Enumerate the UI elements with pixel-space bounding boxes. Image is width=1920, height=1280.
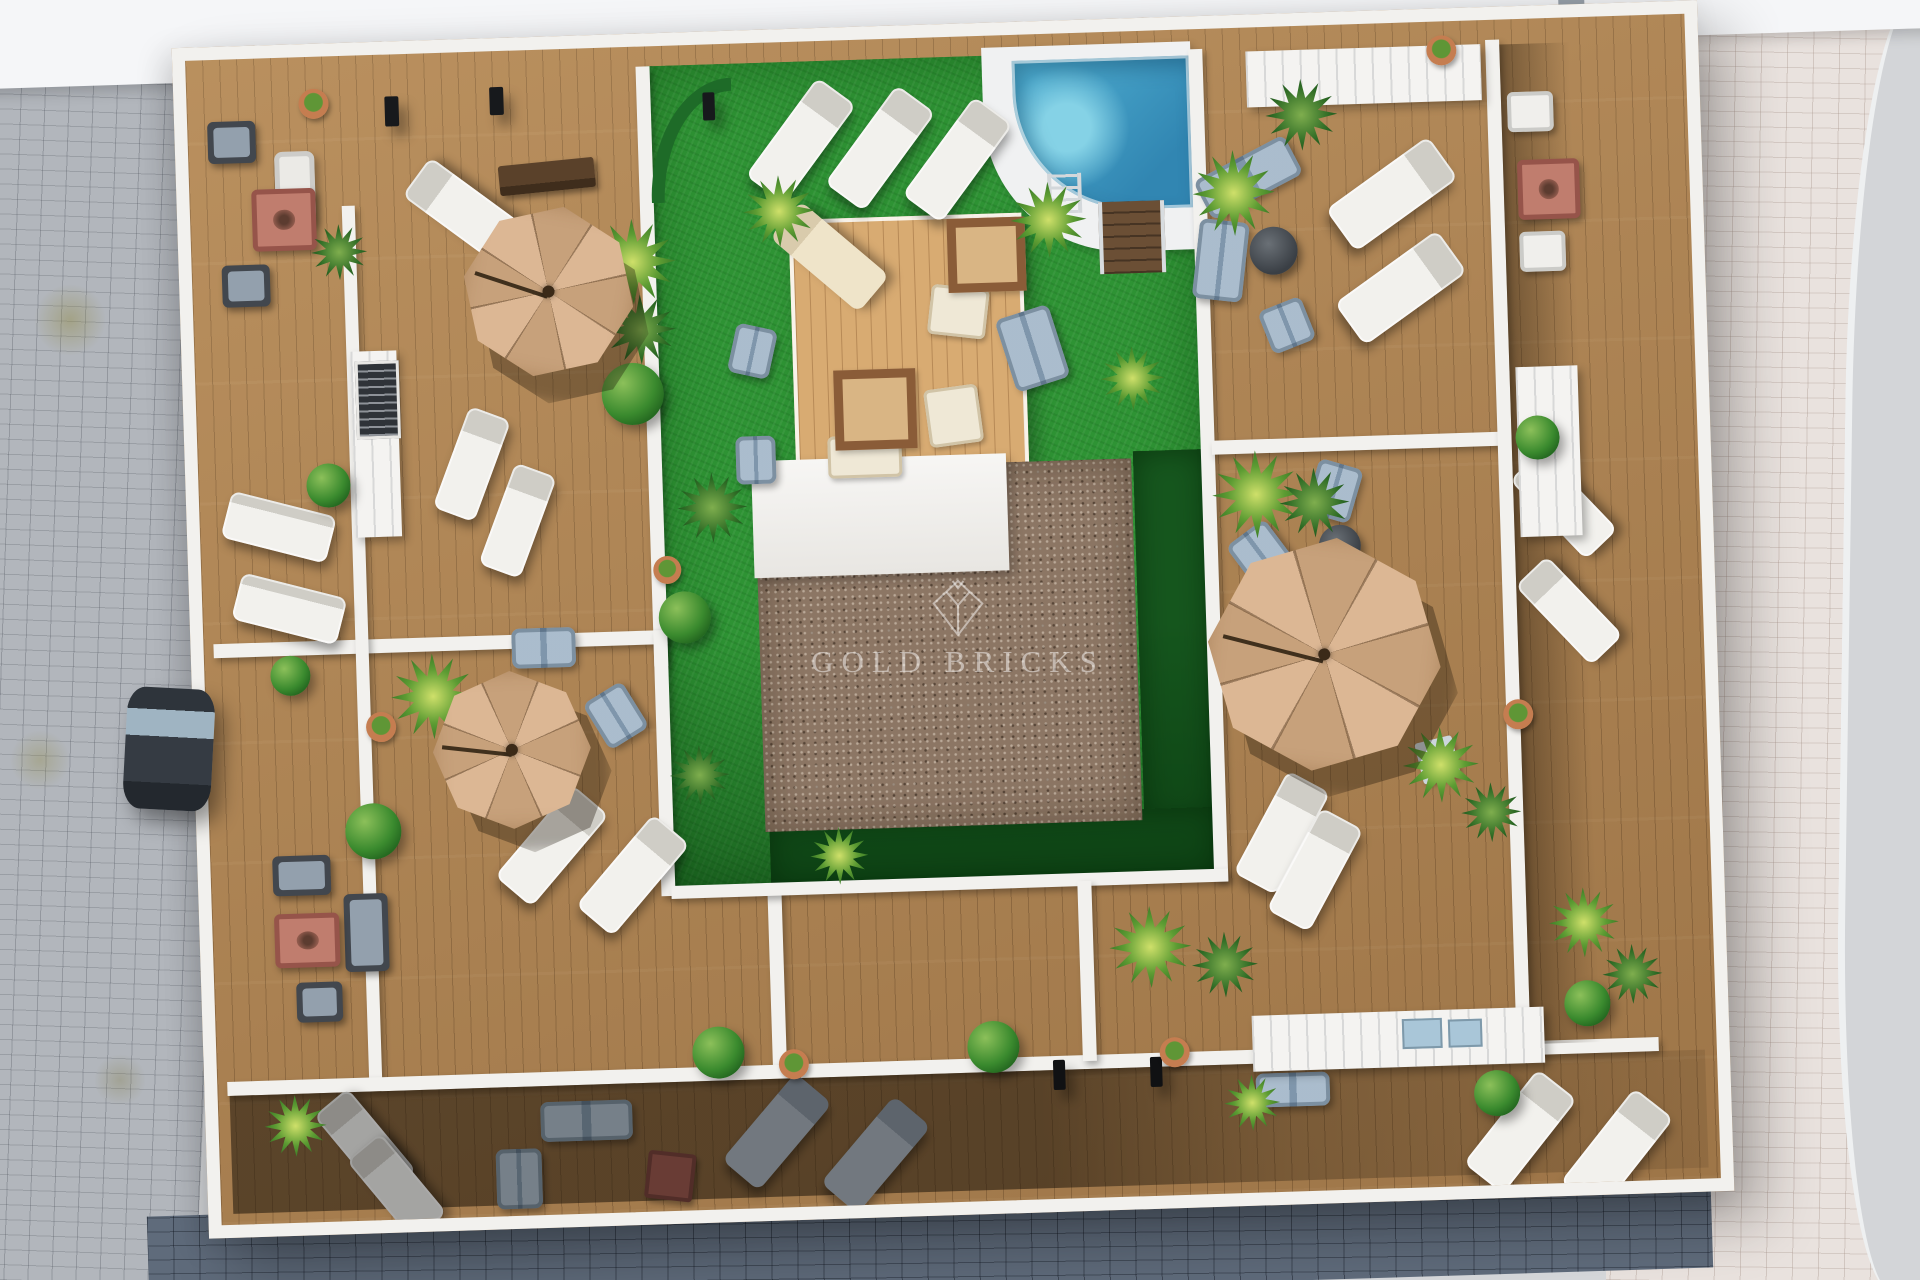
plant [1602,943,1664,1005]
armchair [222,264,271,307]
wall-lamp [489,87,504,115]
kitchen-counter [1252,1007,1546,1072]
bush [345,802,403,860]
table [644,1150,697,1203]
bush [270,655,311,696]
dividing-wall [213,630,667,658]
wall-lamp [384,96,399,126]
armchair [272,855,331,897]
wall-lamp [702,92,715,120]
armchair [735,435,776,484]
sofa [511,627,576,669]
sofa [343,893,389,972]
bush [306,463,351,508]
fire-table [251,188,317,252]
parked-car [122,686,216,812]
parasol [430,668,593,831]
dividing-wall [767,888,787,1073]
parasol [449,192,649,392]
plant [1108,905,1193,990]
pool-steps [1098,200,1166,274]
armchair [296,981,343,1022]
platform-tile [833,368,917,451]
dividing-wall [1212,432,1504,455]
wall-lamp [1053,1060,1066,1090]
dividing-wall [1077,881,1097,1061]
armchair [1507,91,1554,132]
armchair [1519,231,1566,272]
platform-tile [946,217,1026,293]
sink [1448,1019,1483,1048]
plant [310,223,368,281]
flower-pot [366,712,397,743]
fire-table [274,912,341,968]
sink [1402,1018,1443,1049]
armchair [1257,295,1317,355]
sofa [495,1148,543,1209]
plant [1191,931,1259,999]
sofa [540,1099,633,1142]
rooftop-terrace-plan [172,0,1735,1238]
wall-lamp [1150,1057,1163,1087]
bench [498,157,597,197]
sun-lounger [231,572,347,645]
bush [1564,980,1611,1027]
bbq-grill [355,360,401,439]
parasol [1195,525,1453,783]
armchair [207,121,256,164]
seat-cushion [923,383,984,448]
round-table [1249,226,1298,275]
aerial-render: GOLD BRICKS [0,0,1920,1280]
sofa [1192,218,1250,303]
fire-table [1517,158,1581,220]
flower-pot [298,88,329,119]
sun-lounger [478,462,557,579]
